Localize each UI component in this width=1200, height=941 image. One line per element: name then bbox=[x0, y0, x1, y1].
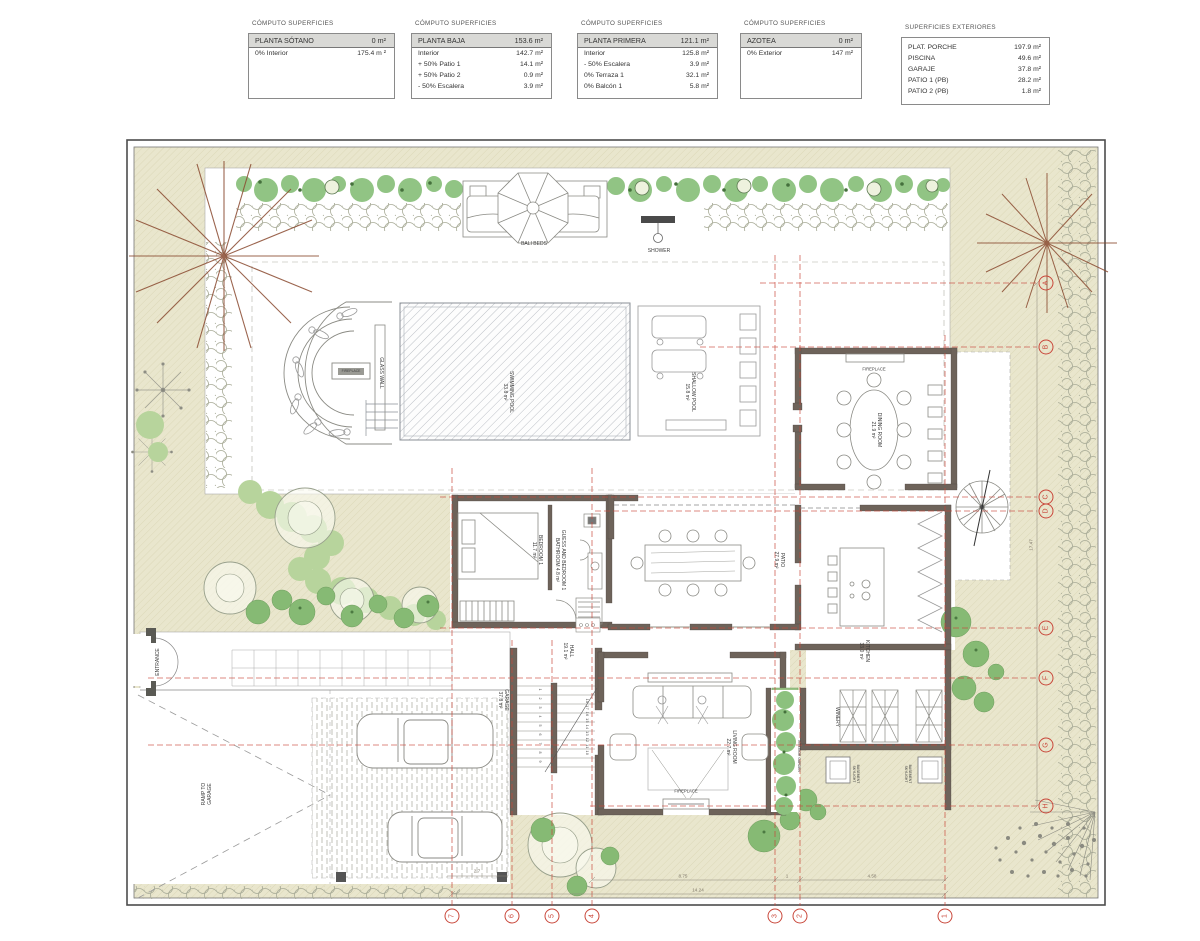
label-interior-garden: INTERIOR GARDEN bbox=[797, 740, 801, 772]
table-row-value: 3.9 m² bbox=[690, 59, 709, 70]
table-row-value: 0.9 m² bbox=[524, 70, 543, 81]
table-header-label: PLANTA SÓTANO bbox=[255, 36, 314, 45]
label-hall: HALL 19.1 m² bbox=[562, 643, 574, 660]
table-row-value: 3.9 m² bbox=[524, 81, 543, 92]
label-patio: PATIO 27.9 m² bbox=[773, 552, 785, 569]
shower bbox=[612, 202, 704, 243]
table-header-label: PLANTA PRIMERA bbox=[584, 36, 646, 45]
table-row-label: Interior bbox=[418, 48, 439, 59]
table-row-value: 49.6 m² bbox=[1018, 53, 1041, 64]
table-header-label: PLANTA BAJA bbox=[418, 36, 465, 45]
table-row-value: 1.8 m² bbox=[1022, 86, 1041, 97]
table-caption: CÓMPUTO SUPERFICIES bbox=[581, 20, 663, 27]
grid-letter-a: A bbox=[1039, 276, 1054, 291]
garage bbox=[312, 698, 508, 882]
table-row-label: 0% Balcón 1 bbox=[584, 81, 622, 92]
swimming-pool bbox=[366, 303, 630, 440]
car-1 bbox=[357, 714, 493, 768]
label-guest-bathroom: GUESS AND BEDROOM 1 BATHROOM 4.8 m² bbox=[554, 530, 566, 591]
table-row-label: GARAJE bbox=[908, 64, 935, 75]
table-row-value: 32.1 m² bbox=[686, 70, 709, 81]
label-kitchen: KITCHEN 33.0 m² bbox=[858, 640, 870, 662]
car-2 bbox=[388, 812, 502, 862]
table-row-value: 175.4 m ² bbox=[357, 48, 386, 59]
shallow-pool bbox=[638, 306, 760, 436]
table-row-label: 0% Interior bbox=[255, 48, 288, 59]
table-row-label: + 50% Patio 1 bbox=[418, 59, 461, 70]
label-shallow-pool: SHALLOW POOL 15.8 m² bbox=[684, 372, 696, 412]
table-row-label: PATIO 2 (PB) bbox=[908, 86, 949, 97]
palm-tree-left bbox=[129, 161, 319, 351]
table-header-value: 153.6 m² bbox=[515, 36, 543, 45]
table-header-label: AZOTEA bbox=[747, 36, 776, 45]
winery-racks bbox=[840, 690, 942, 742]
grid-letter-b: B bbox=[1039, 340, 1054, 355]
table-superficies-exteriores: PLAT. PORCHE197.9 m² PISCINA49.6 m² GARA… bbox=[901, 37, 1050, 105]
table-row-label: PATIO 1 (PB) bbox=[908, 75, 949, 86]
table-header-value: 0 m² bbox=[372, 36, 386, 45]
label-living-room: LIVING ROOM 22.7 m² bbox=[725, 730, 737, 763]
label-glass-wall: GLASS WALL bbox=[378, 357, 384, 389]
grid-number-6: 6 bbox=[505, 909, 520, 924]
table-row-label: 0% Exterior bbox=[747, 48, 782, 59]
label-swimming-pool: SWIMMING POOL 33.8 m² bbox=[502, 371, 514, 413]
grid-number-1: 1 bbox=[938, 909, 953, 924]
table-planta-sotano: PLANTA SÓTANO0 m² 0% Interior175.4 m ² bbox=[248, 33, 395, 99]
table-row-label: PISCINA bbox=[908, 53, 935, 64]
table-row-label: PLAT. PORCHE bbox=[908, 42, 957, 53]
grid-letter-e: E bbox=[1039, 621, 1054, 636]
table-azotea: AZOTEA0 m² 0% Exterior147 m² bbox=[740, 33, 862, 99]
label-ramp-to-garage: RAMP TO GARAGE bbox=[201, 783, 213, 806]
table-caption: CÓMPUTO SUPERFICIES bbox=[252, 20, 334, 27]
table-planta-baja: PLANTA BAJA153.6 m² Interior142.7 m² + 5… bbox=[411, 33, 552, 99]
grid-letter-h: H bbox=[1039, 799, 1054, 814]
label-winery: WINERY bbox=[834, 707, 840, 727]
grid-letter-d: D bbox=[1039, 504, 1054, 519]
floor-plan-page: CÓMPUTO SUPERFICIES PLANTA SÓTANO0 m² 0%… bbox=[0, 0, 1200, 941]
label-basement-skylight-1: BASEMENT SKYLIGHT bbox=[852, 765, 860, 784]
table-row-label: 0% Terraza 1 bbox=[584, 70, 624, 81]
dimension-garage: 2.7 bbox=[474, 869, 480, 874]
grid-number-4: 4 bbox=[585, 909, 600, 924]
dimension-right-total: 17.47 bbox=[1029, 539, 1034, 551]
table-row-value: 28.2 m² bbox=[1018, 75, 1041, 86]
label-bali-beds: BALI BEDS bbox=[521, 241, 547, 247]
table-row-value: 14.1 m² bbox=[520, 59, 543, 70]
label-fireplace-lounge: FIREPLACE bbox=[342, 369, 361, 373]
label-entrance: ENTRANCE bbox=[155, 648, 161, 676]
table-row-value: 197.9 m² bbox=[1014, 42, 1041, 53]
grid-letter-c: C bbox=[1039, 490, 1054, 505]
label-shower: SHOWER bbox=[648, 248, 671, 254]
label-fireplace-dining: FIREPLACE bbox=[862, 366, 885, 371]
table-header-value: 0 m² bbox=[839, 36, 853, 45]
table-row-value: 142.7 m² bbox=[516, 48, 543, 59]
dimension-total: 14.24 bbox=[692, 888, 704, 893]
grid-letter-f: F bbox=[1039, 671, 1054, 686]
stair-numbers-down: 1 2 3 4 5 6 7 8 9 bbox=[538, 689, 542, 766]
dimension-segment-1: 8.75 bbox=[679, 874, 688, 879]
grid-number-5: 5 bbox=[545, 909, 560, 924]
dimension-segment-3: 4.58 bbox=[868, 874, 877, 879]
table-caption: SUPERFICIES EXTERIORES bbox=[905, 24, 996, 31]
label-basement-skylight-2: BASEMENT SKYLIGHT bbox=[904, 765, 912, 784]
table-row-value: 125.8 m² bbox=[682, 48, 709, 59]
table-row-value: 147 m² bbox=[832, 48, 853, 59]
label-dining-room: DINING ROOM 21.9 m² bbox=[870, 413, 882, 447]
table-header-value: 121.1 m² bbox=[681, 36, 709, 45]
grid-number-2: 2 bbox=[793, 909, 808, 924]
table-row-value: 5.8 m² bbox=[690, 81, 709, 92]
grid-letter-g: G bbox=[1039, 738, 1054, 753]
table-row-label: + 50% Patio 2 bbox=[418, 70, 461, 81]
floor-plan-drawing bbox=[0, 0, 1200, 941]
table-planta-primera: PLANTA PRIMERA121.1 m² Interior125.8 m² … bbox=[577, 33, 718, 99]
bali-beds bbox=[463, 173, 607, 243]
dimension-segment-2: 1 bbox=[786, 874, 789, 879]
label-fireplace-living: FIREPLACE bbox=[674, 788, 697, 793]
label-garage: GARAGE 37.8 m² bbox=[497, 689, 509, 710]
table-caption: CÓMPUTO SUPERFICIES bbox=[415, 20, 497, 27]
grid-number-7: 7 bbox=[445, 909, 460, 924]
table-row-label: - 50% Escalera bbox=[584, 59, 630, 70]
table-row-label: - 50% Escalera bbox=[418, 81, 464, 92]
stair-numbers-up: 18 17 16 15 14 13 12 11 10 bbox=[585, 699, 589, 756]
table-row-value: 37.8 m² bbox=[1018, 64, 1041, 75]
table-caption: CÓMPUTO SUPERFICIES bbox=[744, 20, 826, 27]
grid-number-3: 3 bbox=[768, 909, 783, 924]
label-bedroom-1: BEDROOM 1 11.7 m² bbox=[531, 535, 543, 565]
table-row-label: Interior bbox=[584, 48, 605, 59]
